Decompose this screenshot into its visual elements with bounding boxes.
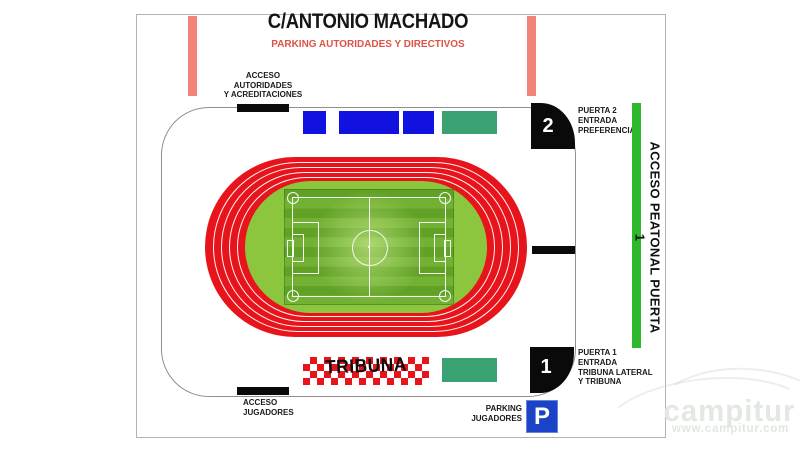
parking-zone-bar-left (188, 16, 197, 96)
seating-block-green-top (442, 111, 497, 134)
players-parking-label: PARKING JUGADORES (452, 404, 522, 424)
seating-block-blue-1 (303, 111, 326, 134)
gate-2-label: PUERTA 2 ENTRADA PREFERENCIA (578, 106, 635, 135)
soccer-pitch (284, 189, 454, 305)
pedestrian-access-bar (632, 103, 641, 348)
pitch-center-spot (368, 246, 370, 248)
seating-block-blue-3 (403, 111, 434, 134)
tribuna-label: TRIBUNA (305, 354, 427, 380)
corner-arc (287, 192, 299, 204)
parking-sign-letter: P (534, 403, 550, 431)
corner-arc (287, 290, 299, 302)
right-side-access-gate (532, 246, 575, 254)
pedestrian-access-label: ACCESO PEATONAL PUERTA 1 (648, 140, 663, 336)
access-authorities-gate (237, 104, 289, 112)
goal-right (444, 240, 451, 257)
corner-arc (439, 290, 451, 302)
pitch-center-circle (352, 230, 388, 266)
seating-block-green-bottom (442, 358, 497, 382)
players-access-gate (237, 387, 289, 395)
goal-left (287, 240, 294, 257)
authorities-parking-label: PARKING AUTORIDADES Y DIRECTIVOS (171, 38, 564, 50)
parking-sign-icon: P (526, 400, 558, 433)
gate-1-number: 1 (540, 356, 551, 379)
gate-2-number: 2 (542, 115, 553, 138)
watermark-url: www.campitur.com (672, 423, 789, 435)
players-access-label: ACCESO JUGADORES (243, 398, 294, 417)
stadium-access-map: C/ANTONIO MACHADO PARKING AUTORIDADES Y … (0, 0, 800, 450)
parking-zone-bar-right (527, 16, 536, 96)
street-title: C/ANTONIO MACHADO (186, 10, 550, 34)
corner-arc (439, 192, 451, 204)
seating-block-blue-2 (339, 111, 399, 134)
gate-1-label: PUERTA 1 ENTRADA TRIBUNA LATERAL Y TRIBU… (578, 348, 653, 387)
access-authorities-label: ACCESO AUTORIDADES Y ACREDITACIONES (203, 71, 323, 100)
